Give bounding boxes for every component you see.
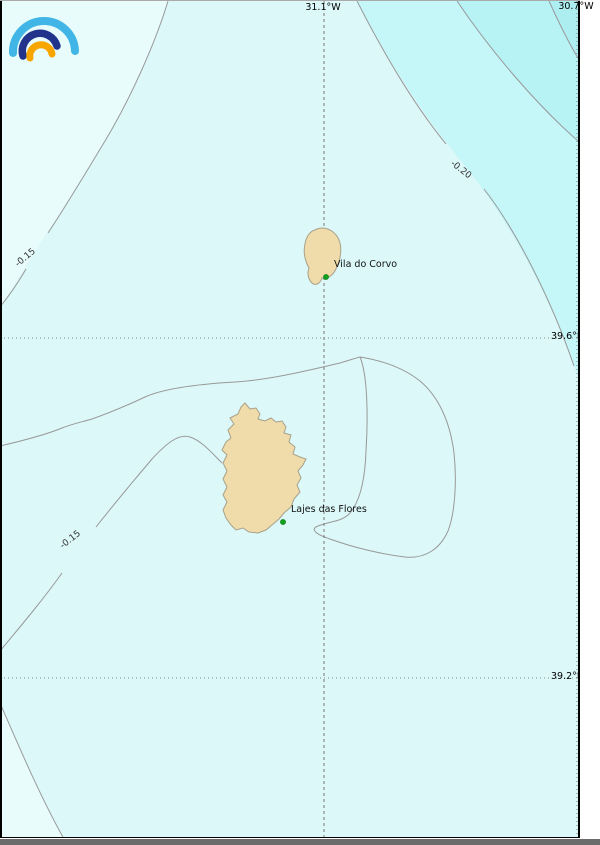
map-border-left [0,1,2,838]
marker-vila-do-corvo [323,274,328,279]
bottom-strip [0,839,600,845]
map-border-right [578,1,580,838]
place-label-vila-do-corvo: Vila do Corvo [334,259,397,270]
map-page: 31.1°W 39.6°N 39.2°N -0.15 -0.20 -0.15 V… [0,0,600,845]
map-frame: 31.1°W 39.6°N 39.2°N -0.15 -0.20 -0.15 V… [0,0,580,838]
lat-label-39-2n: 39.2°N [548,671,580,683]
map-canvas [0,1,580,838]
marker-lajes-das-flores [280,519,285,524]
lat-label-39-6n: 39.6°N [548,331,580,343]
place-label-lajes-das-flores: Lajes das Flores [291,504,367,515]
lon-label-30-7w: 30.7°W [552,1,600,13]
map-border-bottom [0,837,580,838]
lon-label-31-1w: 31.1°W [300,2,346,14]
